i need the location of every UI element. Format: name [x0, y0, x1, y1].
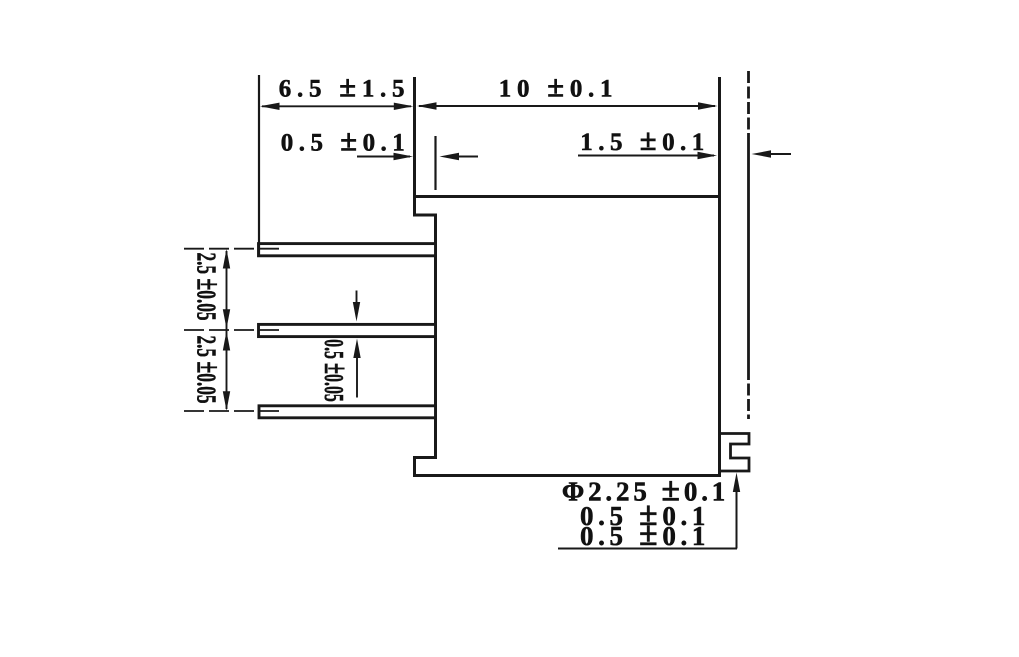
svg-text:2.5 ±0.05: 2.5 ±0.05	[189, 335, 226, 403]
svg-text:10 ±0.1: 10 ±0.1	[499, 69, 618, 104]
svg-text:2.5 ±0.05: 2.5 ±0.05	[189, 252, 226, 320]
svg-text:0.5 ±0.05: 0.5 ±0.05	[316, 339, 354, 402]
svg-text:1.5 ±0.1: 1.5 ±0.1	[580, 122, 709, 157]
svg-text:0.5 ±0.1: 0.5 ±0.1	[281, 123, 410, 158]
svg-text:0.5 ±0.1: 0.5 ±0.1	[580, 516, 710, 553]
svg-text:6.5 ±1.5: 6.5 ±1.5	[279, 69, 410, 104]
